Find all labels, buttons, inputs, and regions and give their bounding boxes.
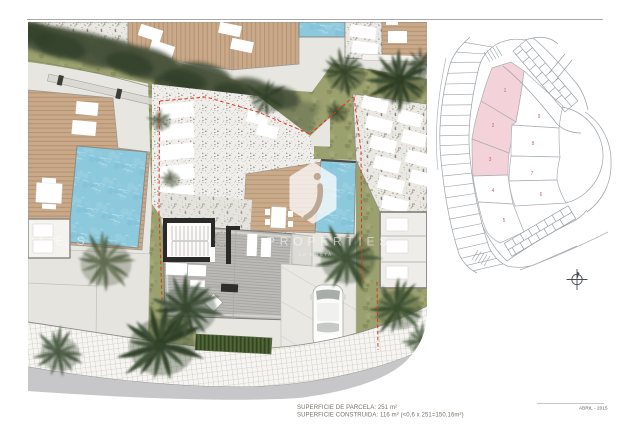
- svg-text:6: 6: [540, 192, 543, 198]
- svg-text:7: 7: [531, 171, 534, 177]
- svg-text:ABRIL - 2015: ABRIL - 2015: [579, 406, 608, 411]
- svg-text:4: 4: [492, 188, 495, 194]
- svg-text:8: 8: [532, 141, 535, 147]
- svg-text:SUPERFICIE DE PARCELA: 251 m²: SUPERFICIE DE PARCELA: 251 m²: [297, 405, 397, 411]
- svg-text:9: 9: [538, 114, 541, 120]
- svg-text:5: 5: [503, 218, 506, 224]
- svg-text:1: 1: [504, 88, 507, 94]
- svg-text:J PROPERTIES: J PROPERTIES: [248, 235, 392, 249]
- svg-text:2: 2: [492, 123, 495, 129]
- svg-text:SUPERFICIE CONSTRUIDA: 116 m²: SUPERFICIE CONSTRUIDA: 116 m² (<0,6 x 25…: [297, 413, 464, 419]
- svg-text:R T I E S: R T I E S: [0, 234, 89, 248]
- svg-text:LA COSTA: LA COSTA: [299, 252, 333, 257]
- svg-text:3: 3: [489, 157, 492, 163]
